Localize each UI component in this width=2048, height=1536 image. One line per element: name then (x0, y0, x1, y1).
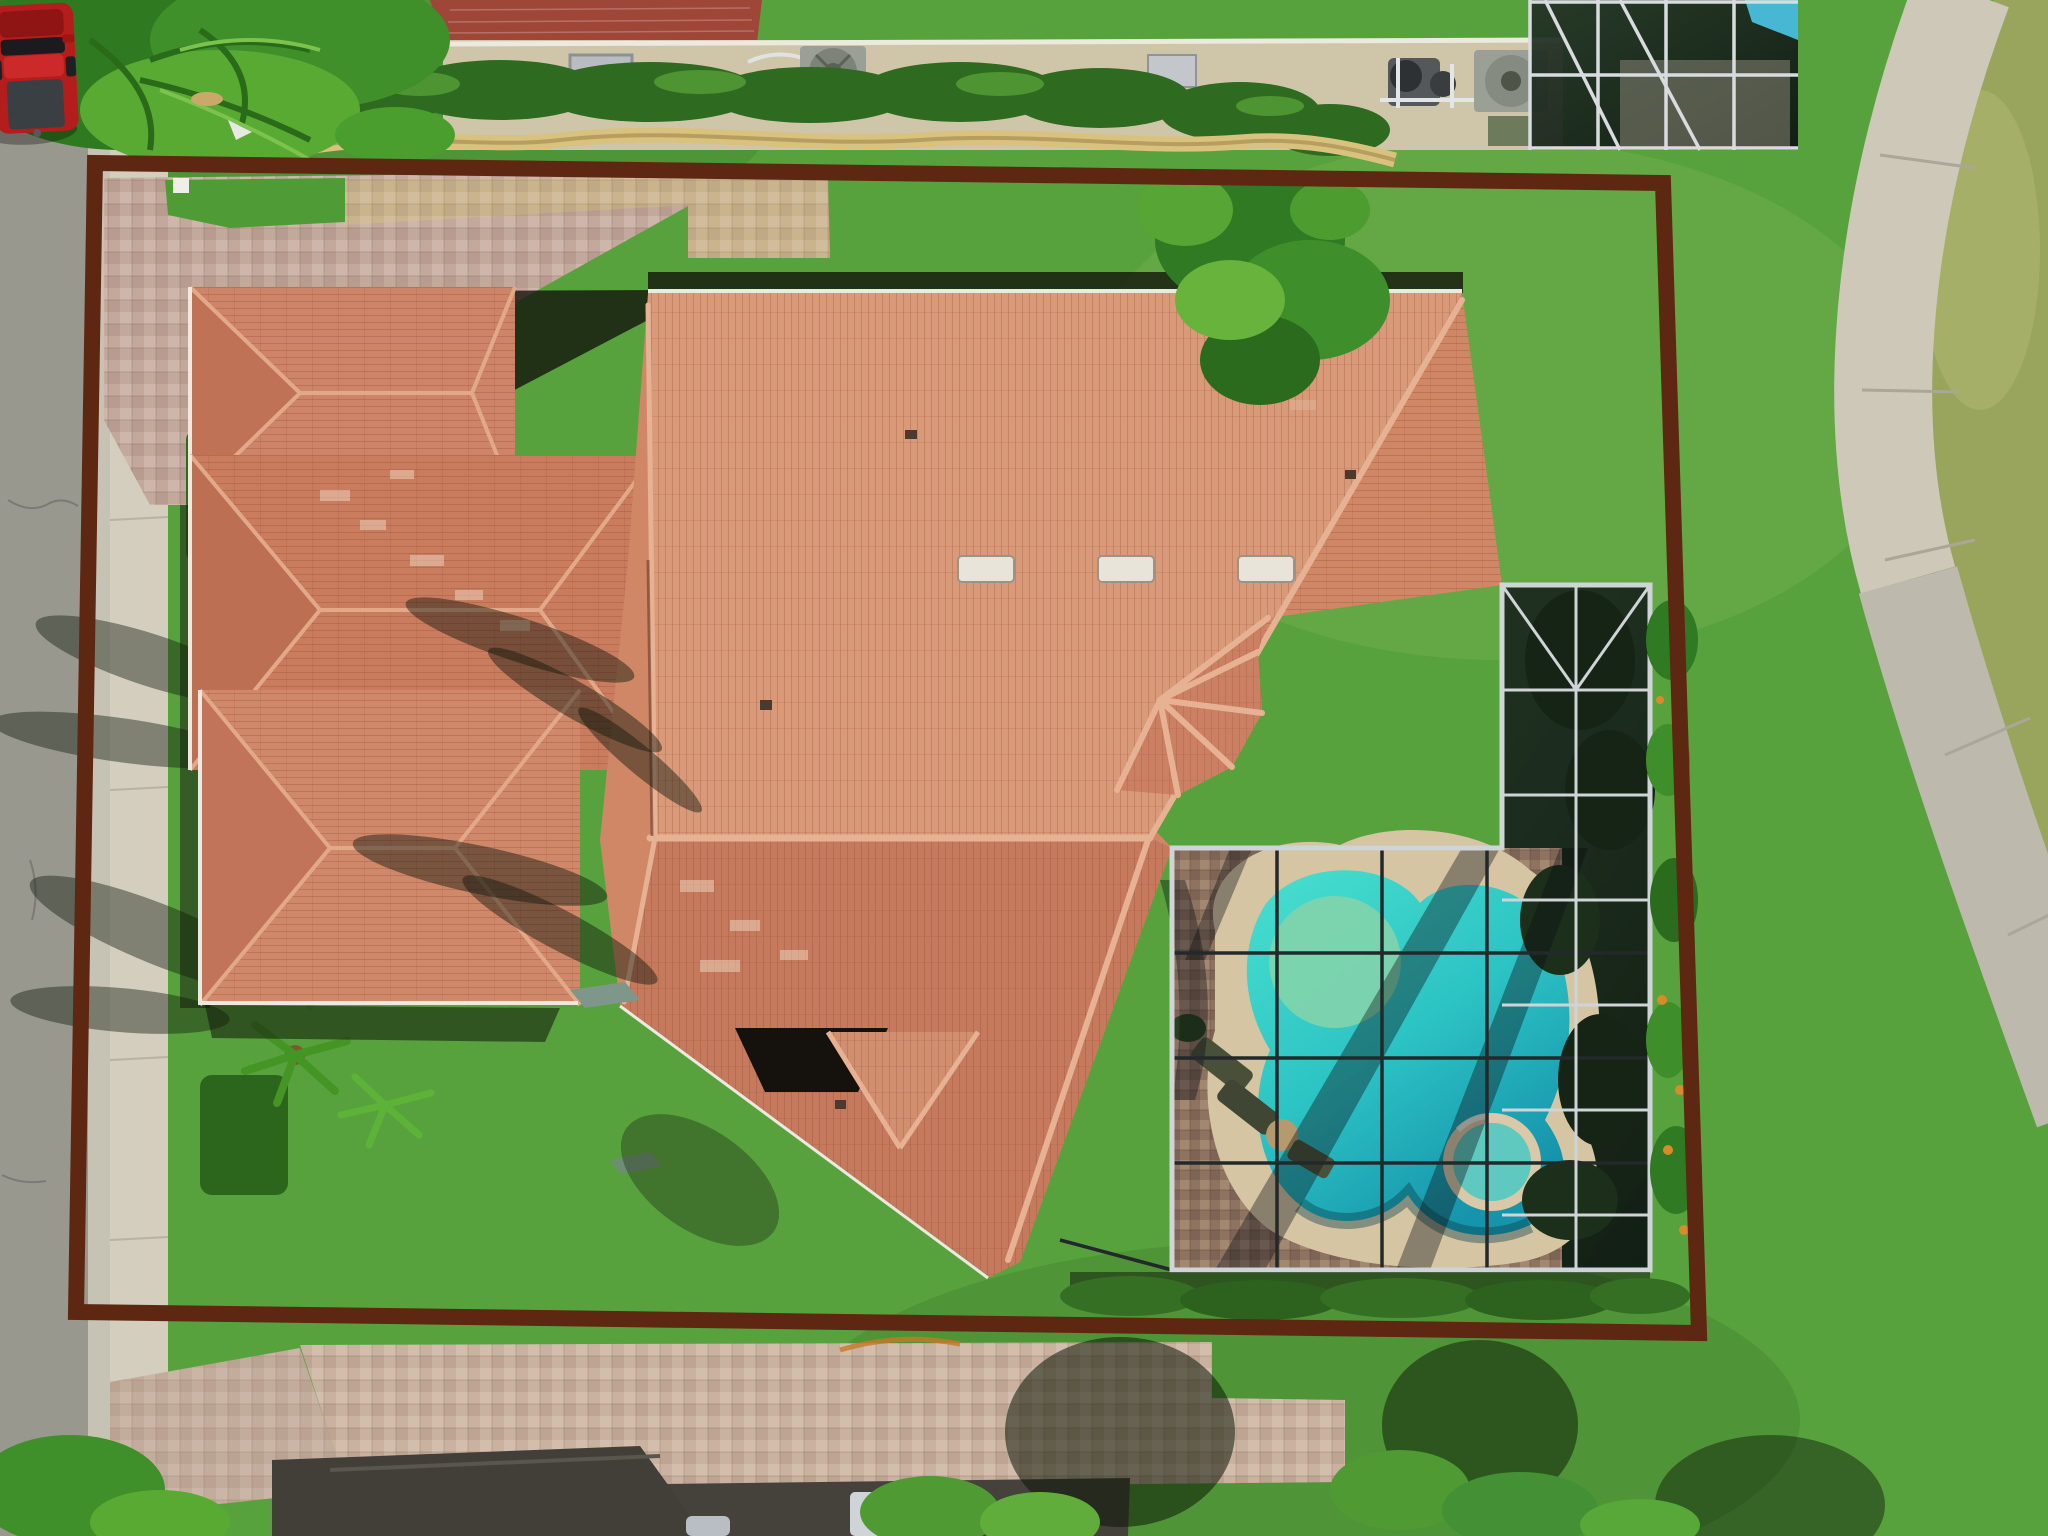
car-sliver (686, 1516, 730, 1536)
truck-windshield (0, 37, 65, 56)
truck-cab-roof (3, 54, 64, 79)
red-truck (0, 2, 80, 147)
neighbor-pool-cage (1530, 0, 1798, 150)
white-paper-speck (173, 178, 189, 193)
truck-wheel-right (65, 56, 76, 76)
ridge-vents (958, 556, 1294, 582)
hedge-block-3 (200, 1075, 288, 1195)
garage-roof-below (272, 1446, 705, 1536)
truck-bed-cover (7, 79, 65, 130)
truck-mirror (62, 34, 74, 43)
stone-debris (191, 92, 223, 106)
truck-hood (0, 9, 64, 38)
aerial-photo (0, 0, 2048, 1536)
